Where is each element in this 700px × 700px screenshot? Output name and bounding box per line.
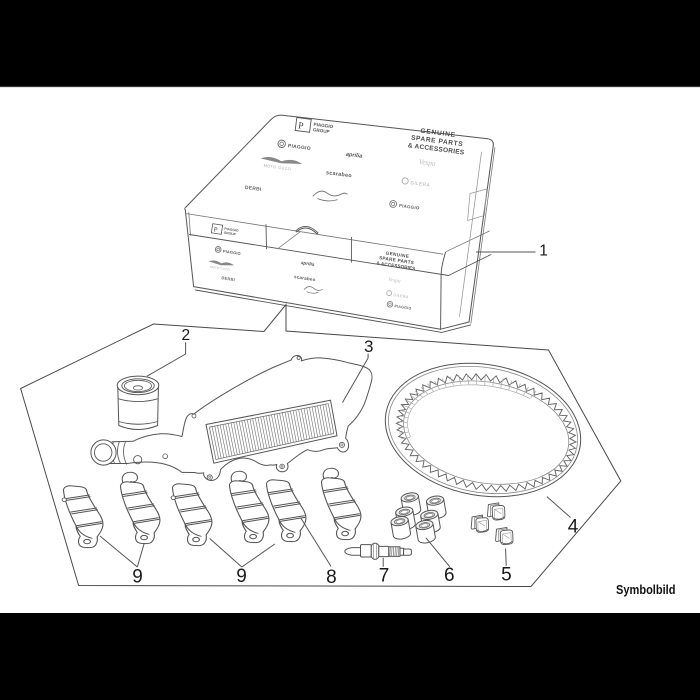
svg-text:9: 9 (236, 566, 247, 587)
svg-text:8: 8 (326, 567, 337, 588)
svg-text:7: 7 (379, 565, 390, 586)
svg-text:Symbolbild: Symbolbild (616, 582, 676, 597)
svg-text:9: 9 (132, 567, 143, 588)
svg-text:2: 2 (181, 327, 190, 344)
svg-text:6: 6 (444, 565, 455, 586)
svg-text:5: 5 (501, 565, 512, 586)
svg-text:3: 3 (364, 337, 373, 356)
svg-text:1: 1 (539, 243, 548, 260)
svg-text:4: 4 (568, 517, 579, 538)
